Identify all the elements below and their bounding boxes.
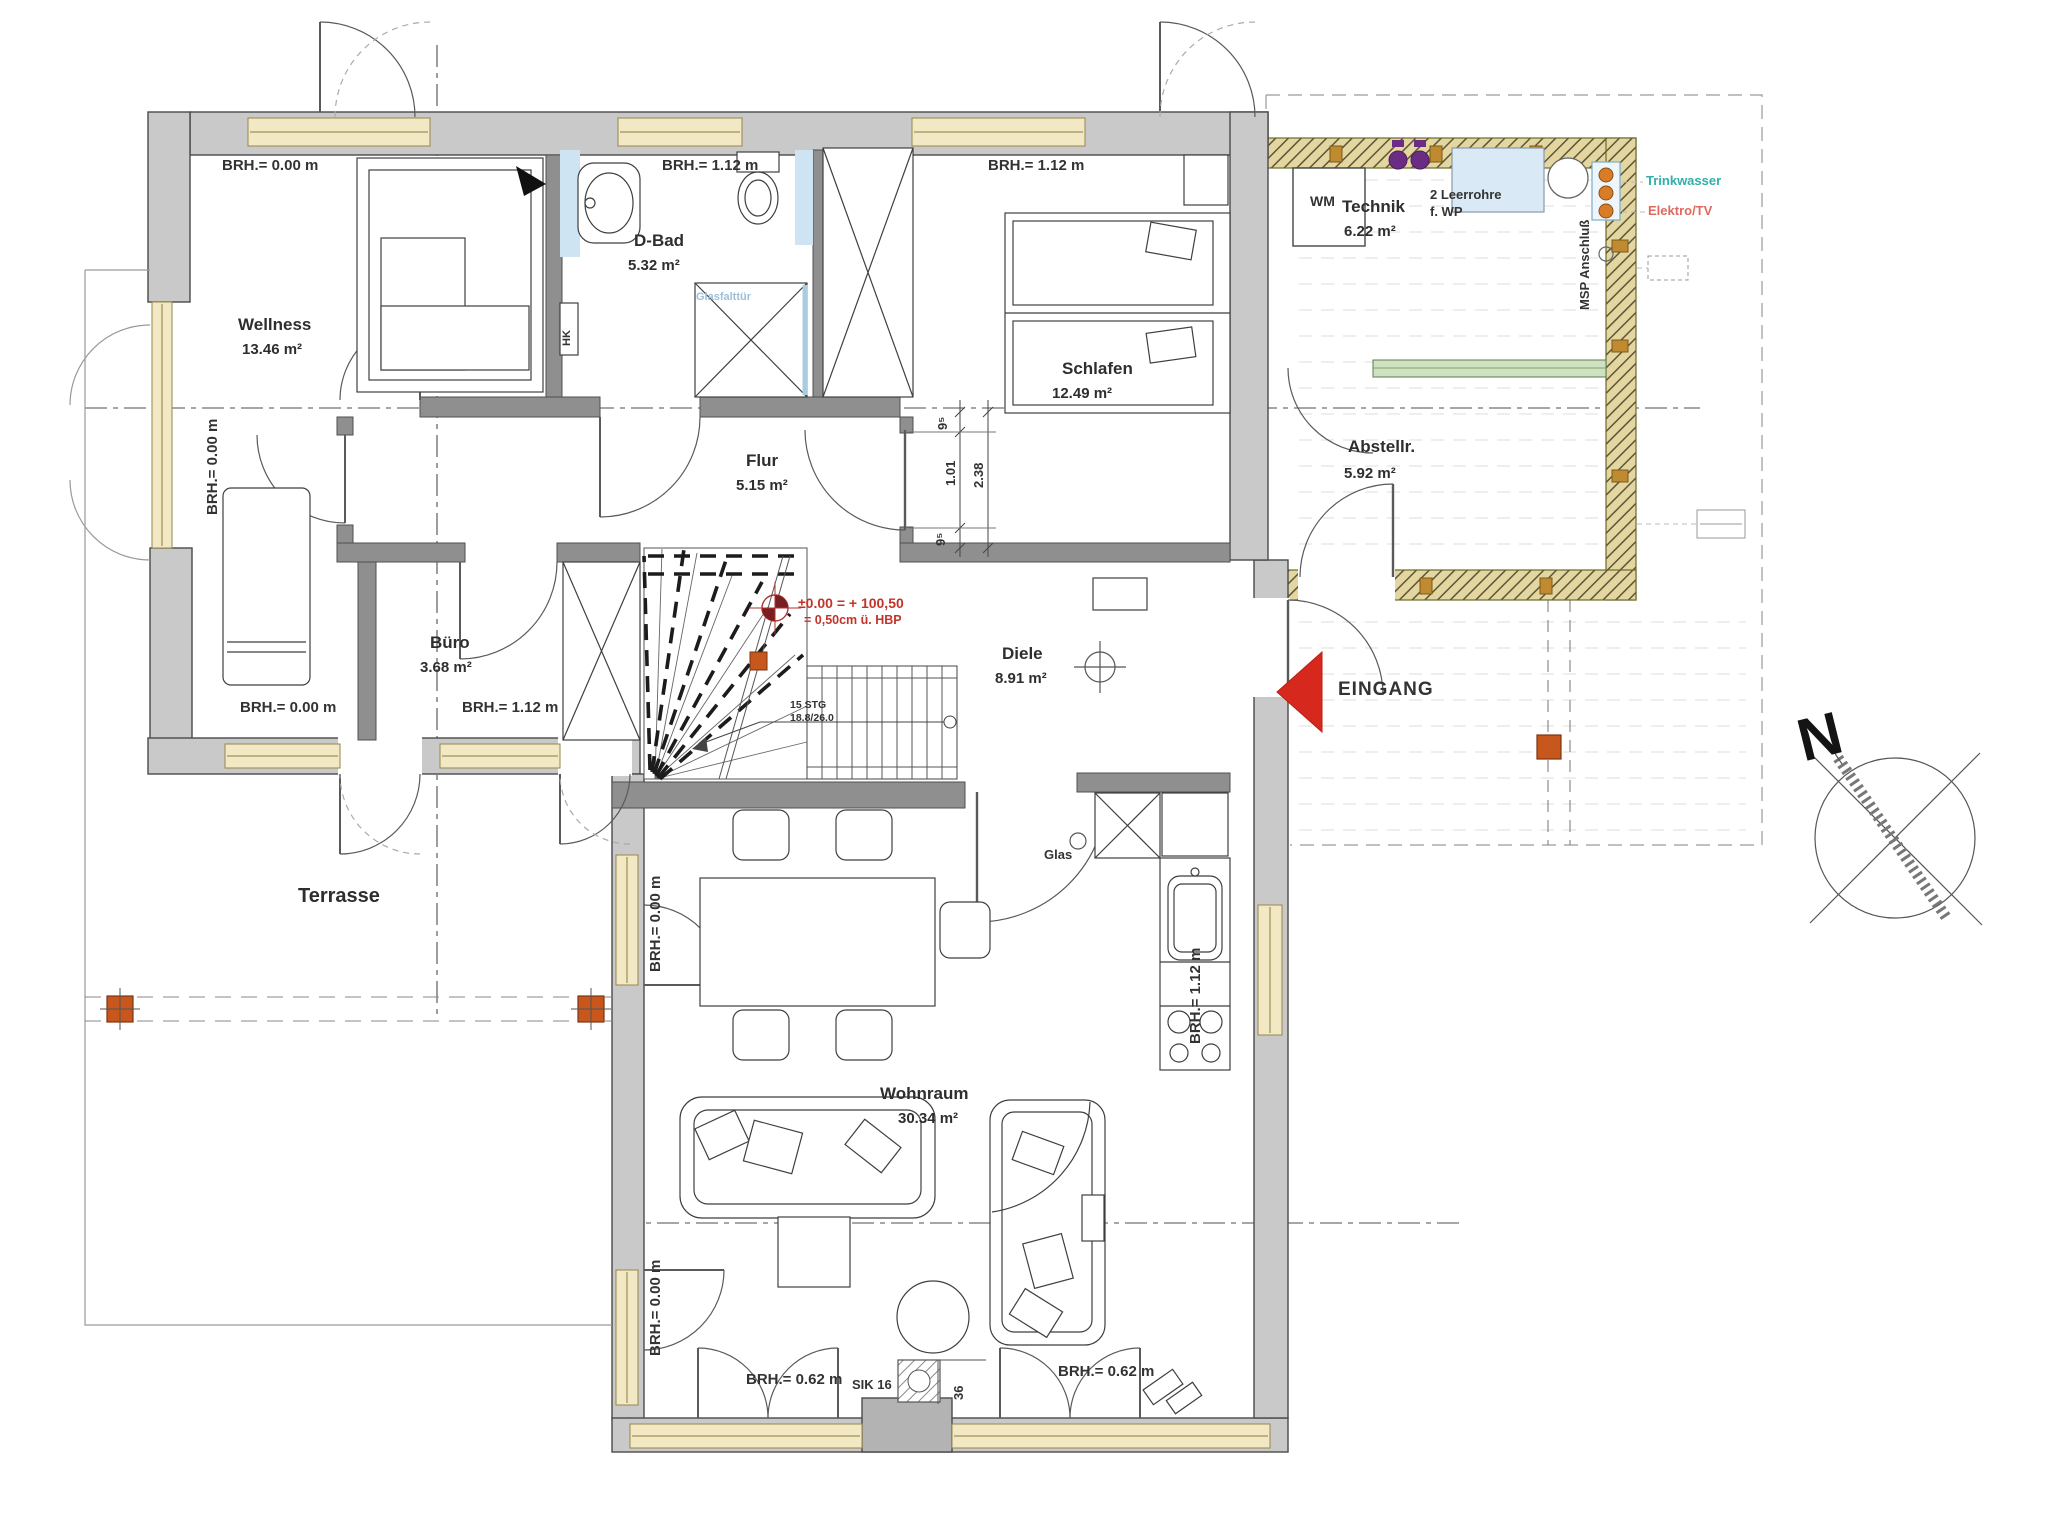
room-area-wellness: 13.46 m² [242,342,302,357]
room-area-buero: 3.68 m² [420,660,472,675]
room-area-schlafen: 12.49 m² [1052,386,1112,401]
room-label-schlafen: Schlafen [1062,360,1133,377]
floor-plan-canvas: BRH.= 0.00 m BRH.= 1.12 m BRH.= 1.12 m B… [0,0,2048,1538]
hall-bench [1093,578,1147,610]
room-label-diele: Diele [1002,645,1043,662]
wellness-lounger [223,488,310,685]
room-area-dbad: 5.32 m² [628,258,680,273]
msp-label: MSP Anschluß [1578,220,1591,310]
sill-label-southwest: BRH.= 0.00 m [648,1260,663,1356]
entrance-label: EINGANG [1338,680,1434,699]
sill-label-south-2: BRH.= 0.62 m [1058,1364,1154,1379]
stair-label-1: 15 STG [790,700,826,711]
room-label-buero: Büro [430,634,470,651]
room-label-abstellraum: Abstellr. [1348,438,1415,455]
chair [733,810,789,860]
glass-door-swing [977,792,1107,922]
sill-label-west: BRH.= 0.00 m [205,419,220,515]
kitchen [1095,793,1230,1070]
sill-label-kitchen: BRH.= 1.12 m [1188,948,1203,1044]
room-area-wohnraum: 30.34 m² [898,1111,958,1126]
staircase [644,548,957,779]
tall-cabinet [1162,793,1228,856]
electro-tv-label: Elektro/TV [1648,204,1712,217]
room-area-diele: 8.91 m² [995,671,1047,686]
sill-label-top-left: BRH.= 0.00 m [222,158,318,173]
sill-label-south-1: BRH.= 0.62 m [746,1372,842,1387]
glass-folding-door-label: Glasfalttür [696,292,751,303]
drinking-water-label: Trinkwasser [1646,174,1721,187]
room-area-flur: 5.15 m² [736,478,788,493]
dim-95-top: 9⁵ [936,417,949,430]
carport-post [1537,735,1561,759]
room-label-technik: Technik [1342,198,1405,215]
radiator [560,303,578,355]
bathroom-fixtures [560,150,813,397]
sill-label-terrace-door: BRH.= 0.00 m [648,876,663,972]
sauna [357,158,546,392]
room-label-flur: Flur [746,452,778,469]
chimney-label: SIK 16 [852,1378,892,1391]
chair [836,1010,892,1060]
walkway-floor [1296,610,1746,835]
sill-label-wellness-south: BRH.= 0.00 m [240,700,336,715]
steel-column [750,652,767,670]
sill-label-bedroom: BRH.= 1.12 m [988,158,1084,173]
sill-label-bath: BRH.= 1.12 m [662,158,758,173]
chair [733,1010,789,1060]
annex-door-gap [1298,568,1395,602]
glass-label: Glas [1044,848,1072,861]
buffer-tank [1452,148,1544,212]
dim-101: 1.01 [944,461,957,486]
chimney-base [862,1398,952,1452]
room-area-abstellraum: 5.92 m² [1344,466,1396,481]
boiler-tank [1548,158,1588,198]
room-label-wohnraum: Wohnraum [880,1085,968,1102]
radiator-label: HK [562,330,573,346]
side-table [1082,1195,1104,1241]
nightstand [1184,155,1228,205]
coffee-table [778,1217,850,1287]
sill-label-office: BRH.= 1.12 m [462,700,558,715]
chimney-dim-label: 36 [952,1386,965,1400]
dining-set [700,810,990,1060]
room-area-technik: 6.22 m² [1344,224,1396,239]
stair-label-2: 18.8/26.0 [790,713,834,724]
level-text-1: ±0.00 = + 100,50 [798,596,904,610]
room-label-terrasse: Terrasse [298,886,380,906]
room-label-wellness: Wellness [238,316,311,333]
dim-238: 2.38 [972,463,985,488]
dining-table [700,878,935,1006]
utility-box [1648,256,1688,280]
conduits-label-1: 2 Leerrohre [1430,188,1502,201]
level-text-2: = 0,50cm ü. HBP [804,614,902,627]
floor-plan-drawing [0,0,2048,1538]
washing-machine-label: WM [1310,194,1335,208]
pouf [897,1281,969,1353]
conduits-label-2: f. WP [1430,205,1463,218]
chair [940,902,990,958]
dim-95-bottom: 9⁵ [934,533,947,546]
chair [836,810,892,860]
room-label-dbad: D-Bad [634,232,684,249]
